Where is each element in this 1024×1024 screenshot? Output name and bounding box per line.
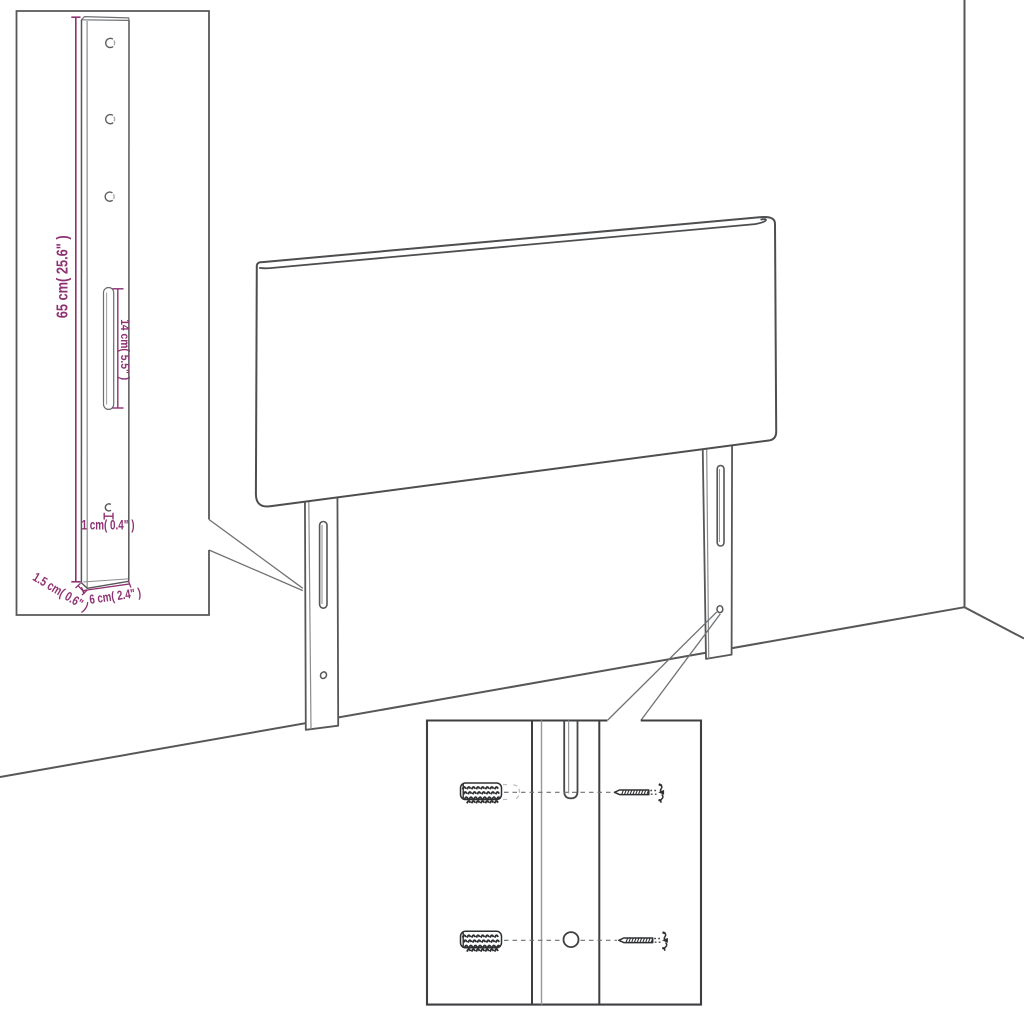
svg-text:65 cm( 25.6" ): 65 cm( 25.6" ) xyxy=(55,235,72,318)
svg-text:1 cm( 0.4" ): 1 cm( 0.4" ) xyxy=(82,518,135,533)
svg-text:14 cm( 5.5" ): 14 cm( 5.5" ) xyxy=(118,319,132,380)
